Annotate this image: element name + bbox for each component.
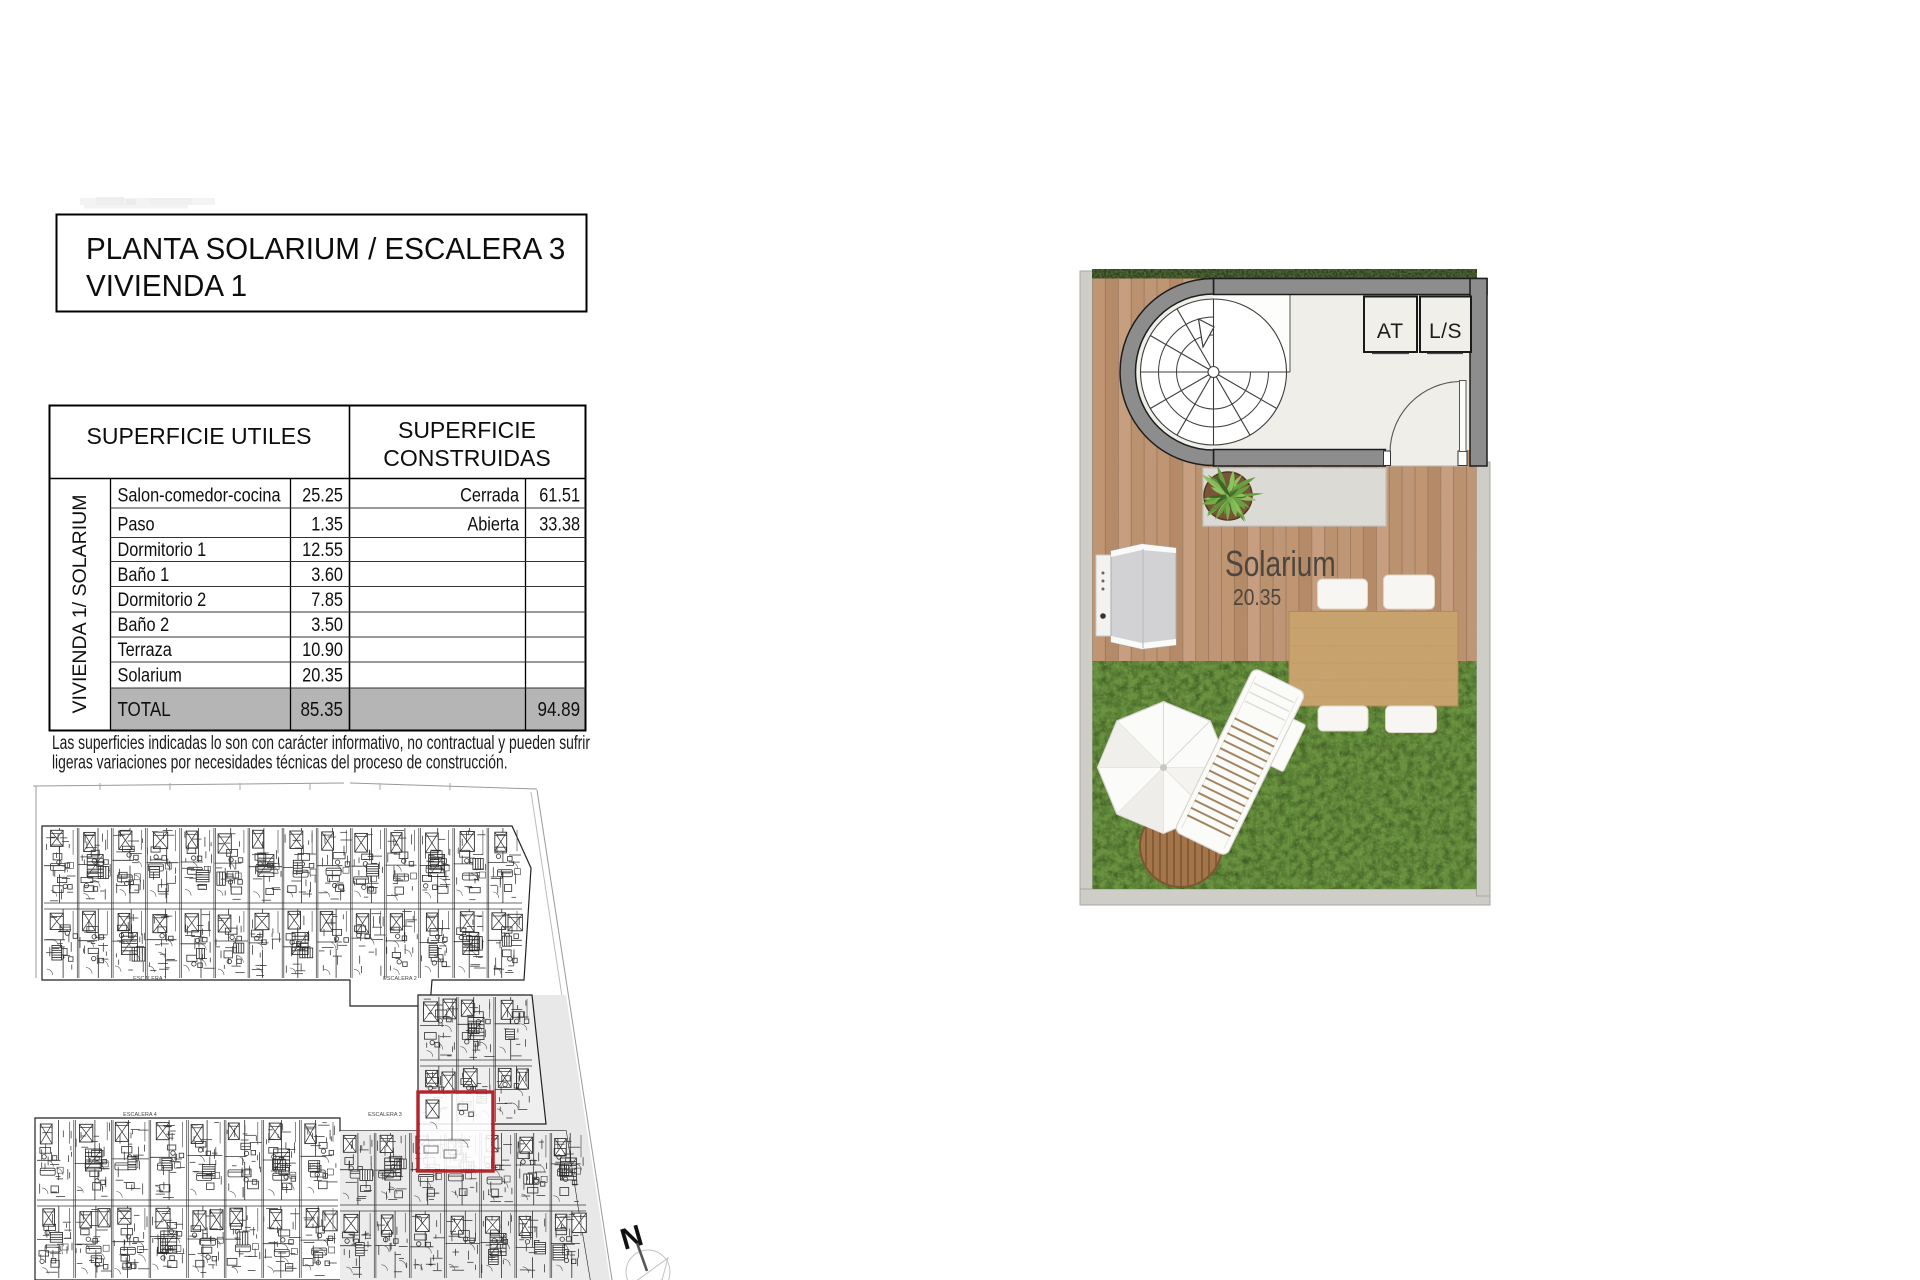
svg-text:AT: AT [1377, 320, 1404, 343]
svg-text:Terraza: Terraza [117, 639, 171, 661]
svg-text:10.90: 10.90 [302, 639, 343, 661]
svg-text:Paso: Paso [117, 513, 154, 535]
svg-text:Dormitorio 2: Dormitorio 2 [117, 589, 206, 611]
svg-text:20.35: 20.35 [1233, 584, 1281, 610]
svg-text:94.89: 94.89 [538, 698, 581, 721]
svg-text:1.35: 1.35 [311, 513, 343, 535]
svg-text:Baño 1: Baño 1 [117, 564, 169, 586]
svg-text:20.35: 20.35 [302, 664, 343, 686]
svg-text:VIVIENDA 1: VIVIENDA 1 [86, 270, 247, 303]
svg-text:ESCALERA 1: ESCALERA 1 [133, 976, 167, 982]
svg-text:Solarium: Solarium [1225, 544, 1336, 584]
svg-text:ESCALERA 3: ESCALERA 3 [368, 1112, 402, 1118]
svg-text:12.55: 12.55 [302, 539, 343, 561]
svg-text:85.35: 85.35 [300, 698, 343, 721]
svg-text:SUPERFICIE UTILES: SUPERFICIE UTILES [87, 423, 312, 449]
svg-text:Salon-comedor-cocina: Salon-comedor-cocina [117, 484, 280, 506]
svg-text:Baño 2: Baño 2 [117, 614, 169, 636]
svg-text:7.85: 7.85 [311, 589, 343, 611]
svg-text:Dormitorio 1: Dormitorio 1 [117, 539, 206, 561]
svg-text:ESCALERA 2: ESCALERA 2 [383, 976, 417, 982]
svg-text:ESCALERA 4: ESCALERA 4 [123, 1112, 157, 1118]
svg-text:SUPERFICIE: SUPERFICIE [398, 417, 536, 443]
svg-text:Abierta: Abierta [467, 513, 519, 535]
svg-text:33.38: 33.38 [539, 513, 580, 535]
svg-text:TOTAL: TOTAL [117, 698, 170, 721]
svg-text:PLANTA SOLARIUM / ESCALERA 3: PLANTA SOLARIUM / ESCALERA 3 [86, 233, 565, 266]
svg-text:ligeras variaciones por necesi: ligeras variaciones por necesidades técn… [52, 751, 508, 773]
svg-text:L/S: L/S [1429, 320, 1462, 343]
svg-text:3.60: 3.60 [311, 564, 343, 586]
svg-text:61.51: 61.51 [539, 484, 580, 506]
svg-text:3.50: 3.50 [311, 614, 343, 636]
svg-text:CONSTRUIDAS: CONSTRUIDAS [383, 445, 550, 471]
svg-text:25.25: 25.25 [302, 484, 343, 506]
svg-text:Solarium: Solarium [117, 664, 181, 686]
svg-text:Cerrada: Cerrada [460, 484, 519, 506]
svg-text:VIVIENDA 1/ SOLARIUM: VIVIENDA 1/ SOLARIUM [69, 495, 91, 714]
